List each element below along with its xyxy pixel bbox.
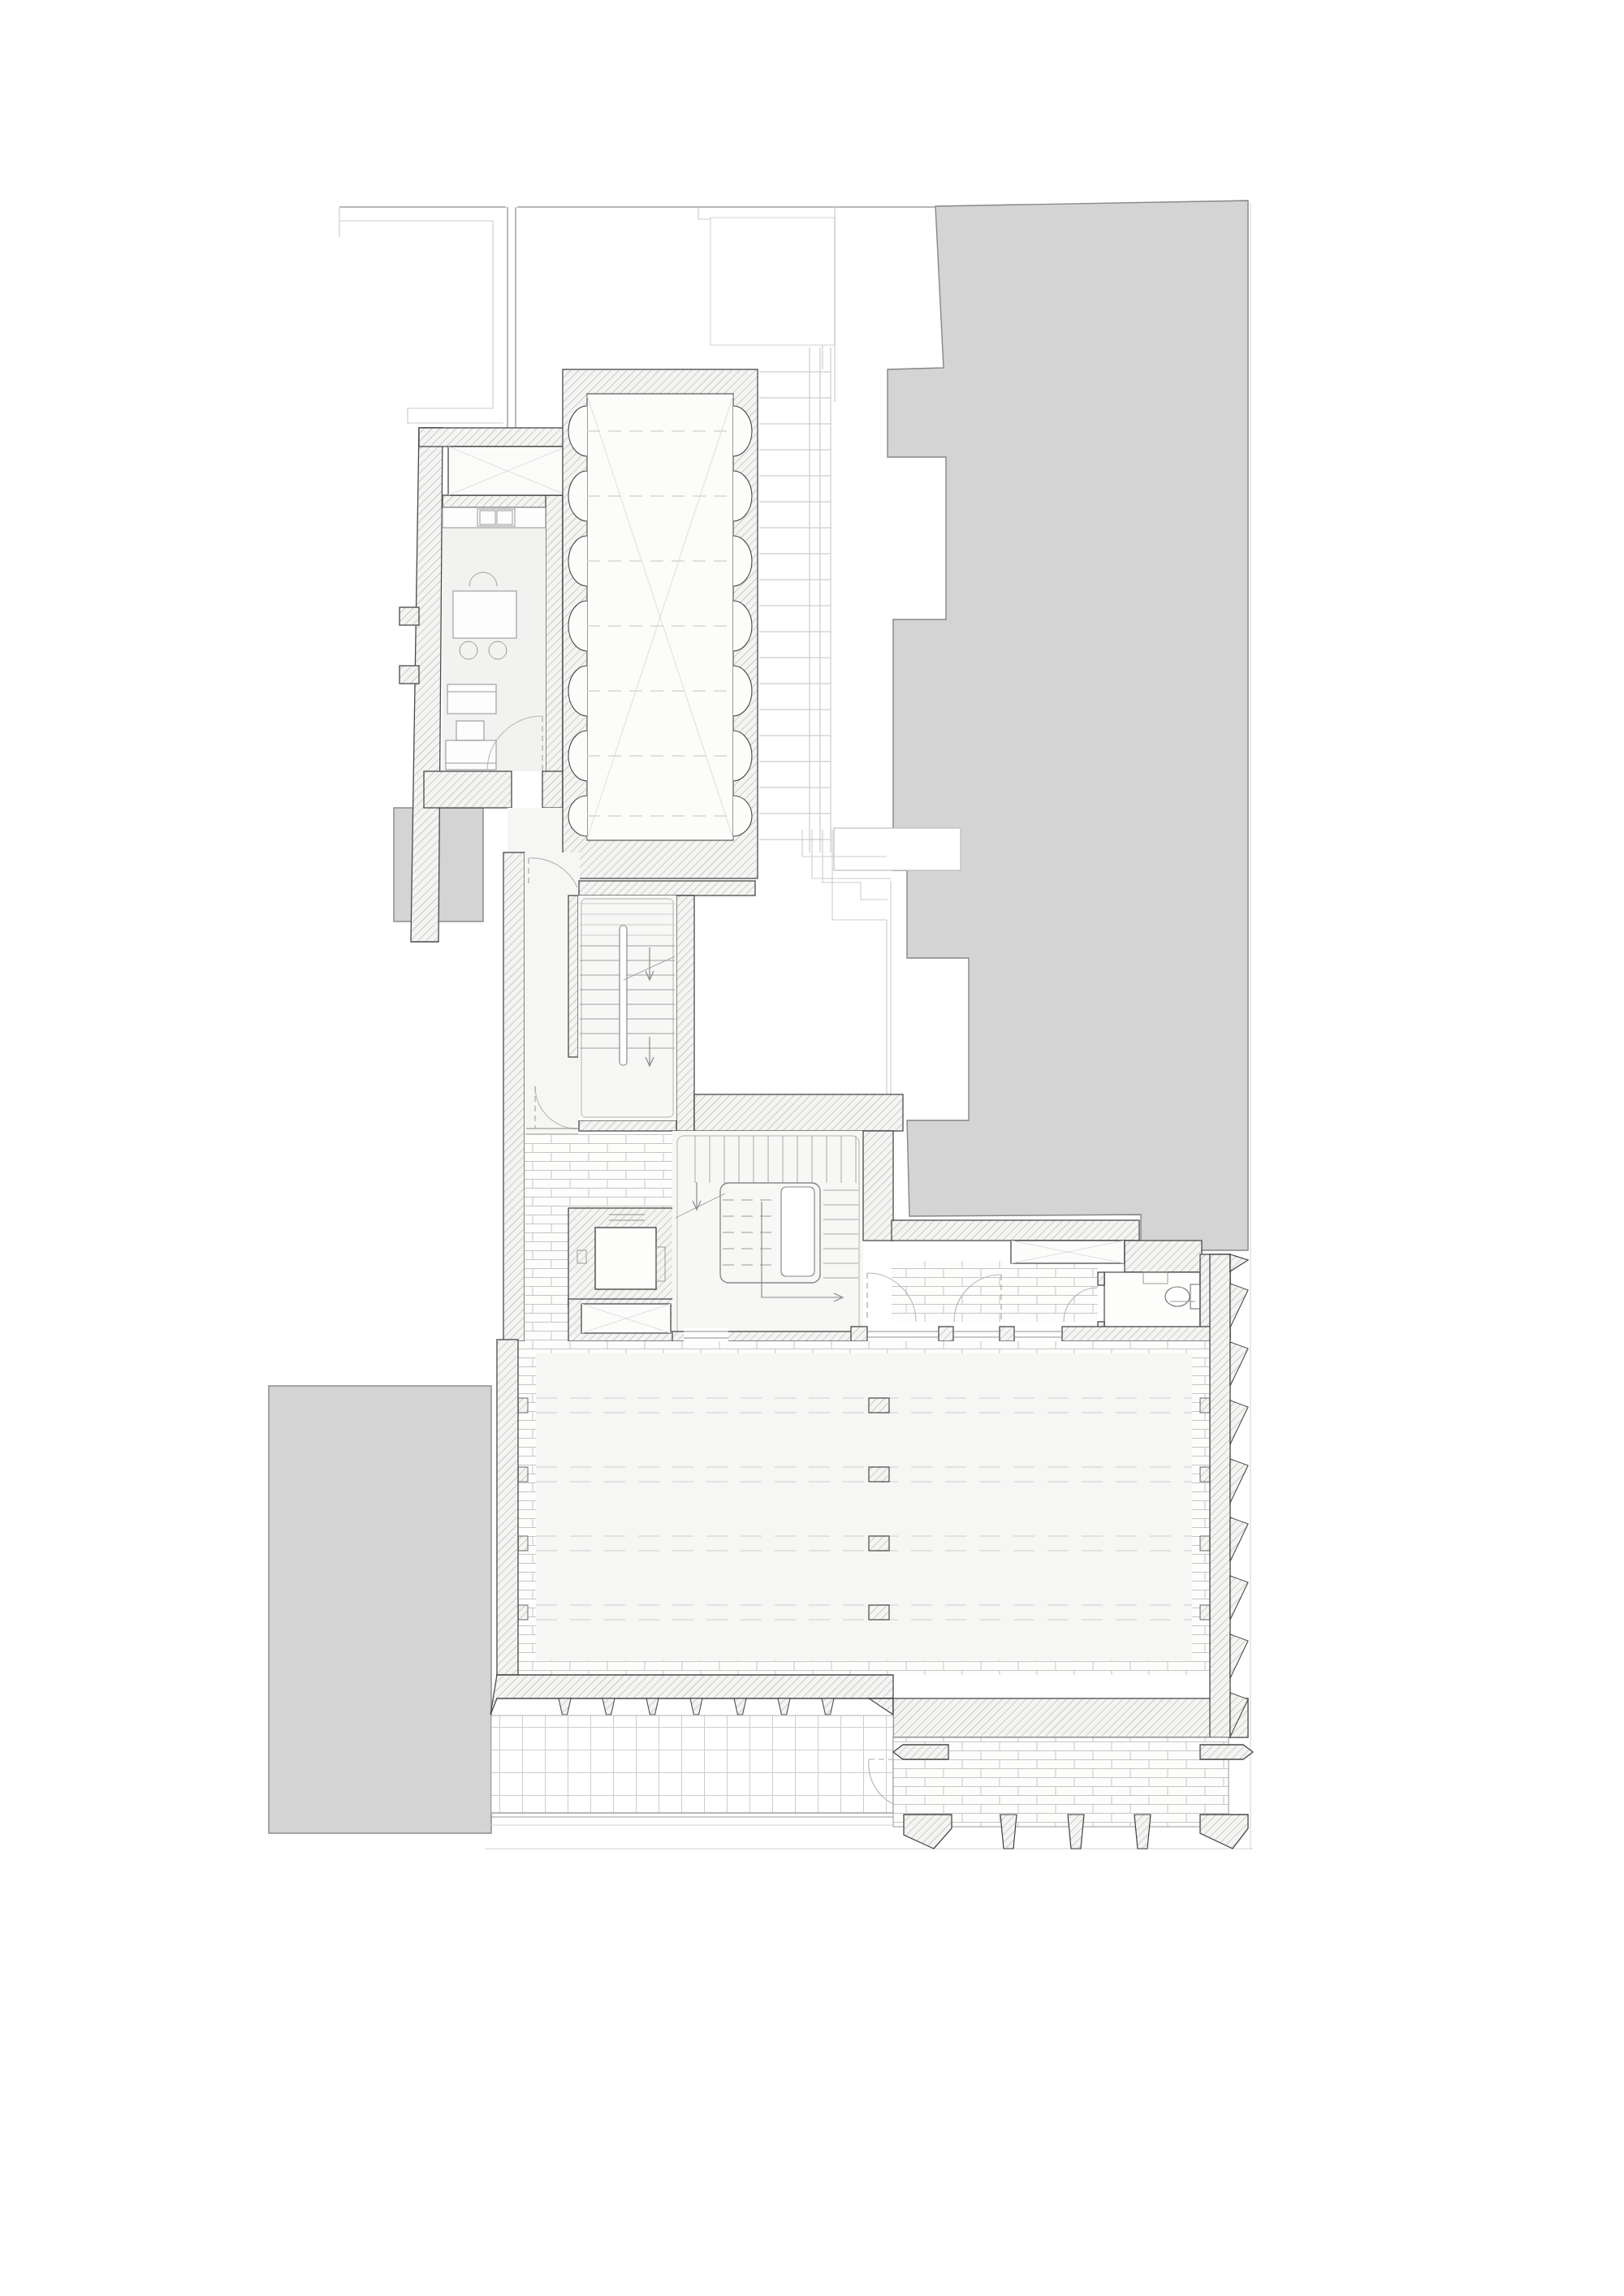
south-wall (424, 771, 512, 808)
hall-south-wall (490, 1675, 893, 1715)
sofa (447, 684, 496, 714)
stair1-north-wall (579, 881, 755, 896)
pilaster (1200, 1398, 1210, 1413)
sofa (446, 740, 496, 770)
wall-stub (400, 666, 419, 684)
pier-corner-east (1200, 1815, 1248, 1849)
column (869, 1605, 889, 1620)
great-hall-floor (536, 1353, 1192, 1660)
brick-terrace (893, 1737, 1253, 1849)
floor-plan-drawing (0, 0, 1624, 2296)
south-east-wall (893, 1698, 1248, 1737)
stair2-east-wall (863, 1131, 893, 1241)
floor-plan-page (0, 0, 1624, 2296)
facade-tooth (1230, 1576, 1248, 1620)
stair2-north-wall (694, 1094, 903, 1131)
south-facade-teeth (559, 1698, 834, 1715)
terrace-pier (1134, 1815, 1151, 1849)
elevator-car (595, 1228, 656, 1289)
pilaster (1200, 1536, 1210, 1551)
hall-east-wall (1210, 1254, 1230, 1737)
facade-tooth (1230, 1342, 1248, 1386)
pilaster (518, 1536, 528, 1551)
pilaster (1200, 1605, 1210, 1620)
pilaster (518, 1467, 528, 1482)
roof-light-rect (834, 828, 961, 870)
facade-tooth (778, 1698, 790, 1715)
neighbor-building-left-large (269, 1386, 491, 1833)
west-wall (411, 428, 443, 942)
facade-tooth (1230, 1459, 1248, 1503)
pilaster (1200, 1467, 1210, 1482)
corridor-north-wall (892, 1220, 1139, 1241)
wall-stub (1000, 1327, 1014, 1341)
stair-island (781, 1187, 814, 1276)
ladder-strip (759, 347, 831, 852)
facade-tooth (690, 1698, 702, 1715)
facade-tooth (822, 1698, 834, 1715)
facade-tooth (1230, 1517, 1248, 1561)
coffee-table (456, 721, 484, 740)
wall-stub (400, 607, 419, 625)
neighbor-building-right (834, 201, 1248, 1250)
pier-arrow-west (893, 1745, 948, 1759)
pier-arrow-east (1200, 1745, 1253, 1759)
stair1-east-wall (676, 896, 694, 1131)
facade-tooth (1230, 1400, 1248, 1444)
facade-tooth (603, 1698, 615, 1715)
facade-tooth (1230, 1634, 1248, 1678)
stair-handrail (620, 926, 627, 1065)
window-lines (867, 1331, 1062, 1337)
terrace-pier (1068, 1815, 1084, 1849)
corridor-west-wall (503, 852, 525, 1341)
column (869, 1467, 889, 1482)
corridor-brick-floor (892, 1261, 1098, 1322)
wall-stub (851, 1327, 867, 1341)
scalloped-hall (563, 369, 758, 878)
column (869, 1536, 889, 1551)
hall-west-wall (497, 1340, 518, 1675)
north-wall (419, 428, 568, 447)
facade-tooth (1230, 1284, 1248, 1327)
dining-table (453, 591, 516, 638)
pier-corner-west (904, 1815, 952, 1849)
column (869, 1398, 889, 1413)
toilet (1165, 1287, 1190, 1306)
east-facade-teeth (1230, 1284, 1248, 1737)
facade-tooth (734, 1698, 746, 1715)
wall-stub (939, 1327, 953, 1341)
pilaster (518, 1398, 528, 1413)
facade-tooth (559, 1698, 571, 1715)
facade-tooth (646, 1698, 659, 1715)
pilaster (518, 1605, 528, 1620)
terrace-pier (1000, 1815, 1017, 1849)
